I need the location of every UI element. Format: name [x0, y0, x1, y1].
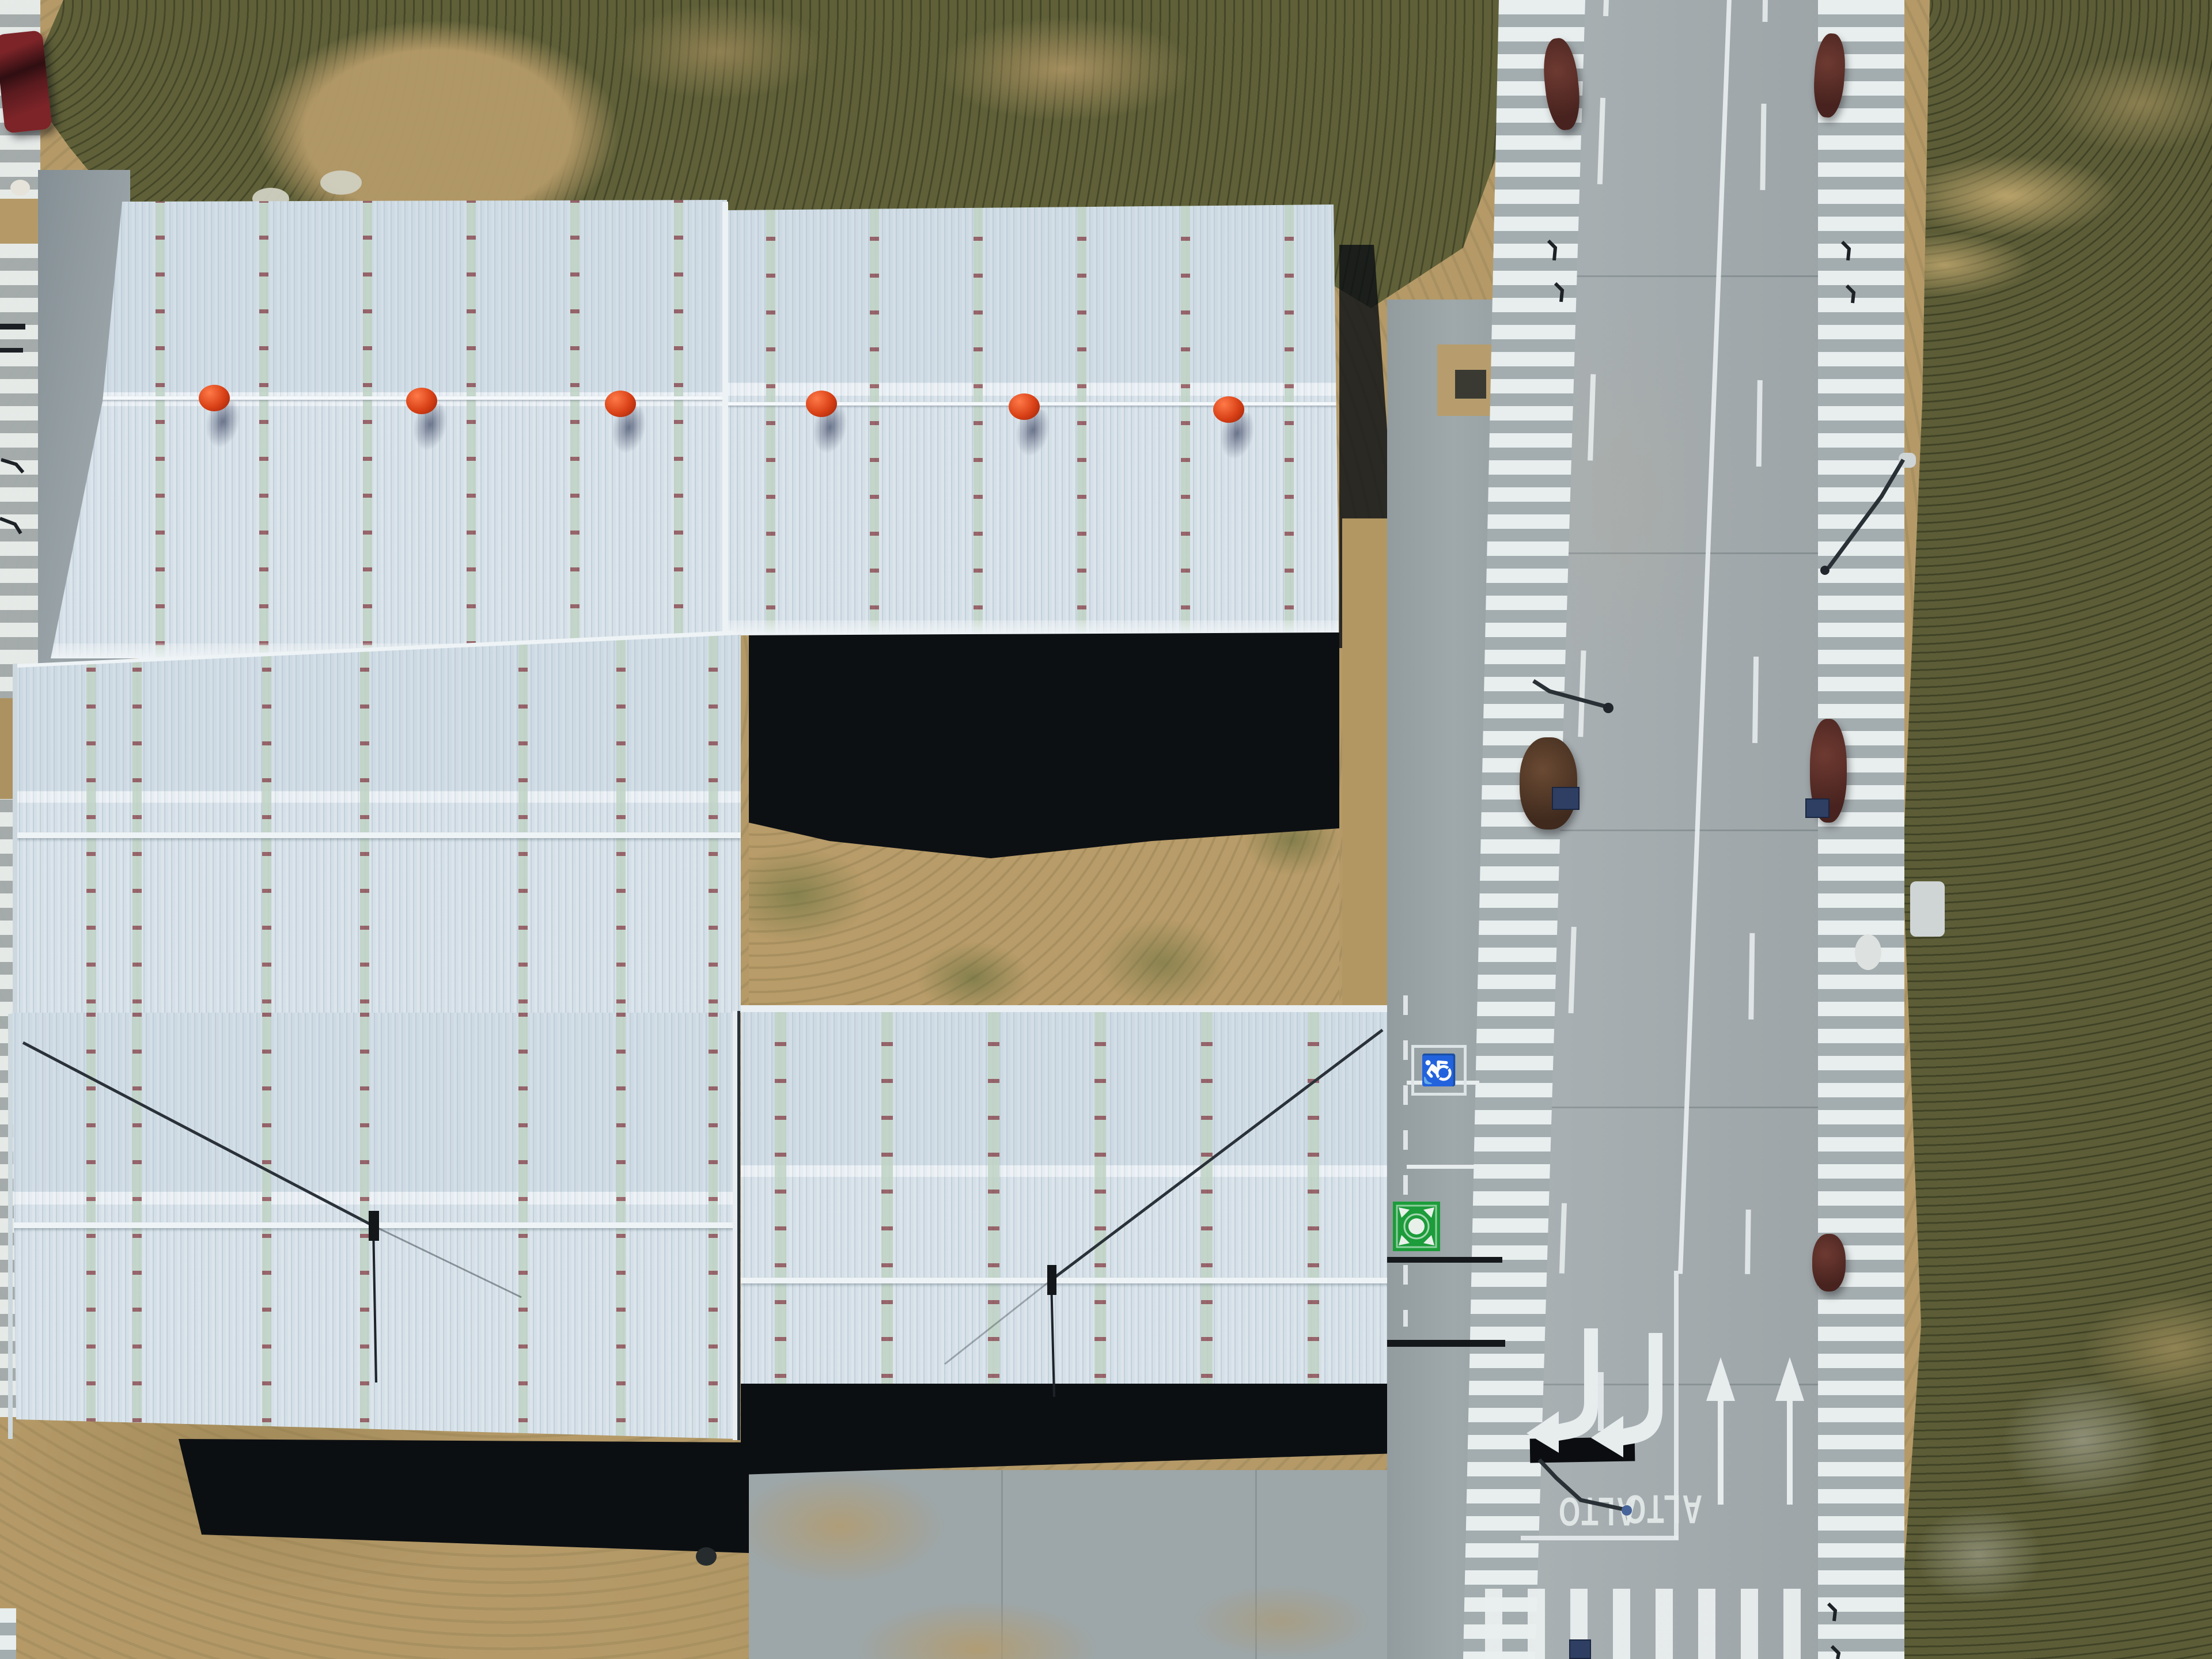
streetlight-pole	[1539, 1460, 1623, 1509]
wire-anchor	[369, 1211, 379, 1241]
guy-wire	[1051, 1030, 1382, 1280]
guy-wire-faint	[373, 1226, 521, 1297]
streetlight-head	[1820, 566, 1830, 575]
conduit-stub	[1, 460, 23, 472]
aerial-photo-canvas: ALTO ALTO ♿	[0, 0, 2212, 1659]
wire-anchor	[1047, 1265, 1056, 1295]
conduit-stub	[1842, 242, 1849, 260]
lightning-rod	[1051, 1280, 1054, 1397]
vector-overlay	[0, 0, 2212, 1659]
streetlight-head	[1622, 1505, 1632, 1516]
streetlight-pole	[1533, 681, 1605, 706]
lightning-rod	[373, 1226, 376, 1382]
streetlight-pole	[1828, 460, 1903, 568]
conduit-stub	[1548, 241, 1555, 260]
straight-arrow-marking	[1706, 1357, 1735, 1505]
streetlight-head	[1603, 703, 1613, 713]
straight-arrow-marking	[1775, 1357, 1804, 1505]
turn-arrow-marking	[1527, 1328, 1598, 1453]
guy-wire-faint	[945, 1280, 1051, 1364]
conduit-stub	[1847, 286, 1854, 303]
assembly-point-marker	[1393, 1202, 1440, 1251]
conduit-stub	[1828, 1604, 1835, 1621]
conduit-stub	[1555, 283, 1562, 302]
turn-arrow-marking	[1591, 1333, 1662, 1457]
conduit-stub	[1832, 1646, 1839, 1659]
conduit-stub	[0, 518, 21, 533]
guy-wire	[23, 1043, 373, 1226]
